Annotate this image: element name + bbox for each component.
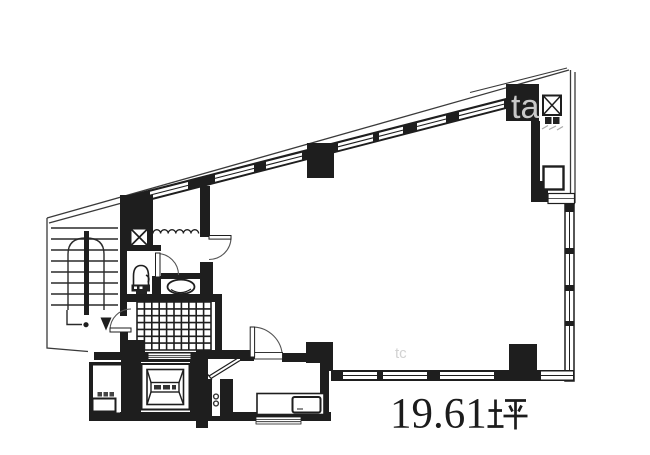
svg-text:19.61: 19.61	[390, 391, 487, 438]
svg-text:tc: tc	[395, 345, 407, 362]
svg-text:ta: ta	[511, 88, 539, 126]
